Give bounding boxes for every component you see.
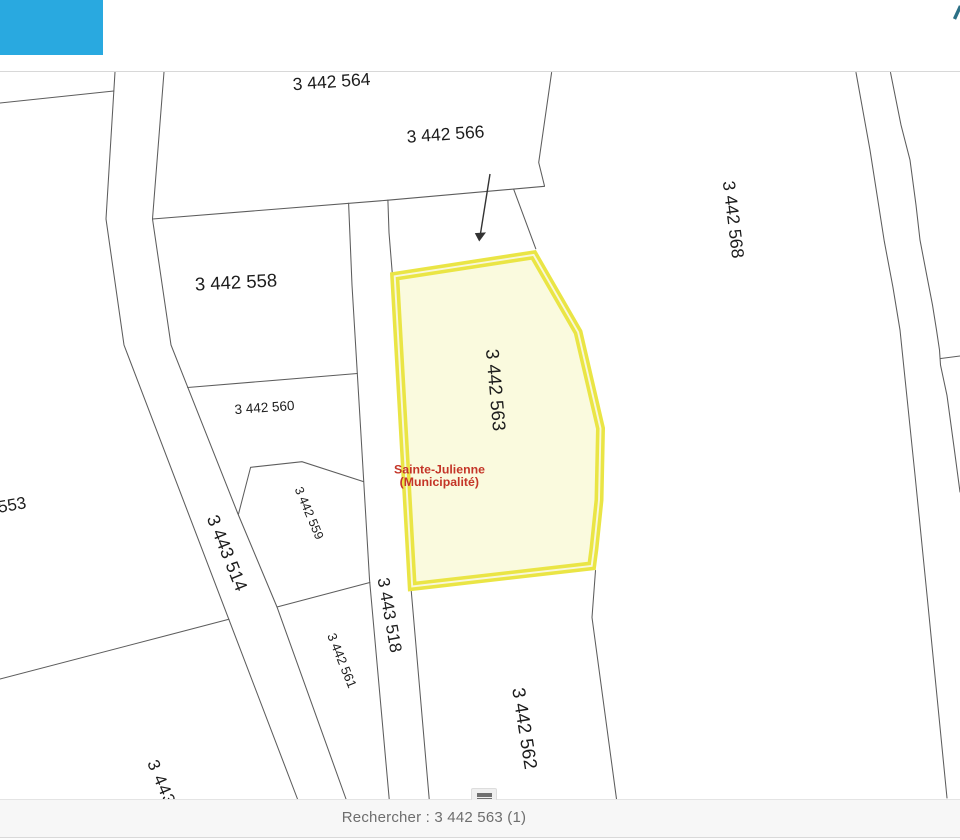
svg-text:3 442 558: 3 442 558 bbox=[194, 269, 277, 294]
svg-text:3 443 514: 3 443 514 bbox=[203, 512, 252, 594]
svg-text:3 442 560: 3 442 560 bbox=[234, 398, 295, 417]
svg-text:3 442 568: 3 442 568 bbox=[719, 180, 748, 260]
svg-text:3 442 561: 3 442 561 bbox=[324, 631, 360, 690]
svg-text:3 442 566: 3 442 566 bbox=[406, 121, 485, 146]
svg-text:3 442 562: 3 442 562 bbox=[508, 686, 542, 771]
svg-text:(Municipalité): (Municipalité) bbox=[400, 475, 479, 489]
svg-text:3 443 518: 3 443 518 bbox=[374, 576, 406, 654]
svg-text:3 442 559: 3 442 559 bbox=[292, 485, 327, 542]
svg-text:3 442 553: 3 442 553 bbox=[0, 493, 28, 525]
svg-text:3 442 564: 3 442 564 bbox=[292, 69, 371, 94]
